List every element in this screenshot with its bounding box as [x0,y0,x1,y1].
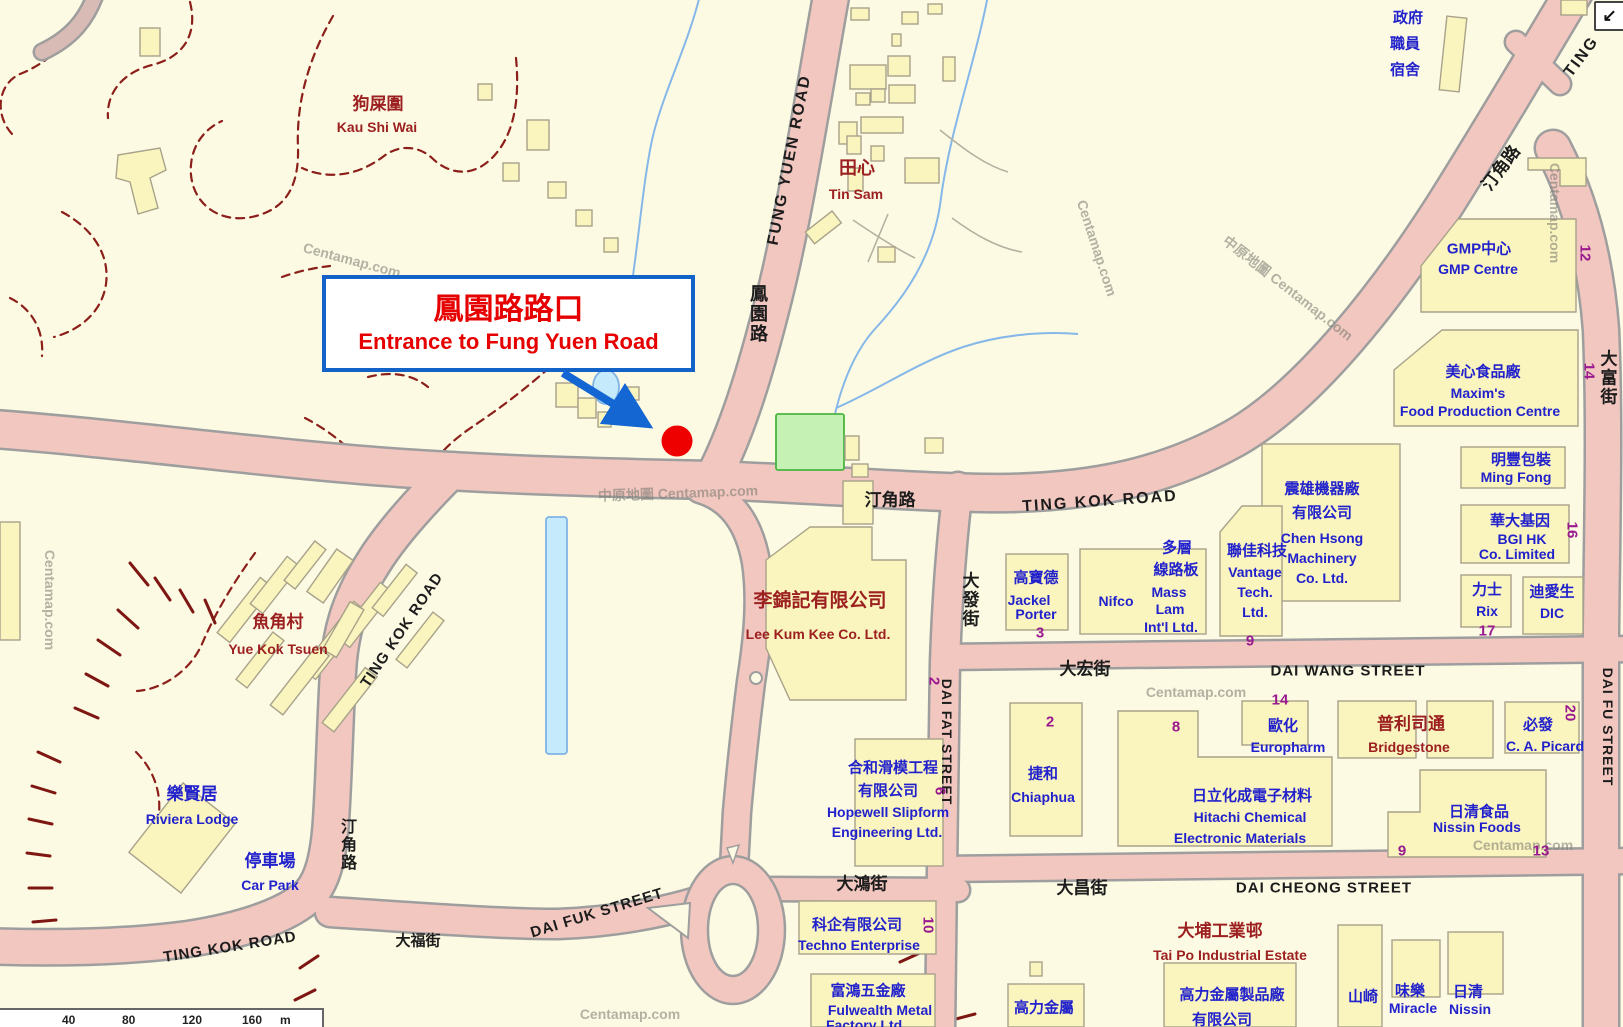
scale-tick-120: 120 [182,1013,202,1027]
road-label-dai-fu-zh: 大富街 [1599,350,1616,407]
scale-bar: 40 80 120 160 m [0,1008,324,1027]
building-label-mass-en2: Lam [1156,602,1185,616]
building-label-mass-en3: Int'l Ltd. [1144,620,1198,634]
building-label-mass-en1: Mass [1151,585,1186,599]
building-label-techno-zh: 科企有限公司 [812,918,902,933]
building-label-miracle-en: Miracle [1389,1001,1437,1015]
place-yue-kok-tsuen-en: Yue Kok Tsuen [228,642,327,656]
building-label-chen-zh1: 震雄機器廠 [1284,482,1359,497]
building-label-picard-en: C. A. Picard [1506,739,1584,753]
building-label-bgi-en1: BGI HK [1498,532,1547,546]
building-label-ming-fong-en: Ming Fong [1481,470,1552,484]
building-label-vantage-en3: Ltd. [1242,605,1268,619]
building-label-lkk-en: Lee Kum Kee Co. Ltd. [746,627,891,641]
building-label-fulwealth-zh: 富鴻五金廠 [830,984,905,999]
building-label-mass-zh2: 線路板 [1153,563,1198,578]
road-label-dai-fat-zh: 大發街 [961,572,978,629]
lot-number-3: 3 [1036,626,1044,641]
lot-number-10: 10 [921,917,936,934]
lot-number-9: 9 [1246,634,1254,649]
pan-control-button[interactable]: ↙ [1594,1,1623,31]
road-label-dai-fuk-zh: 大福街 [395,934,440,949]
road-label-ting-partial: TING [1562,34,1603,81]
place-tai-po-ie-zh: 大埔工業邨 [1178,923,1263,940]
building-label-rix-en: Rix [1476,604,1498,618]
lot-number-17: 17 [1479,624,1496,639]
building-label-chen-en1: Chen Hsong [1281,531,1363,545]
building-label-bgi-zh: 華大基因 [1490,514,1550,529]
lot-number-14: 14 [1582,363,1597,380]
place-govt-quarters-3: 宿舍 [1390,63,1420,78]
road-label-ting-kok-en-sw: TING KOK ROAD [162,929,297,965]
road-label-dai-fuk-en: DAI FUK STREET [529,886,666,941]
place-car-park-en: Car Park [241,878,299,892]
road-label-dai-cheong-zh: 大昌街 [1057,880,1108,897]
building-label-hopewell-zh2: 有限公司 [858,784,918,799]
lot-number-2-chiaphua: 2 [1046,715,1054,730]
building-label-yamazaki: 山崎 [1348,990,1378,1005]
building-label-dic-zh: 迪愛生 [1529,585,1574,600]
road-label-dai-cheong-en: DAI CHEONG STREET [1236,881,1412,896]
building-label-ko-lik-factory-2: 有限公司 [1192,1013,1252,1027]
lot-number-20: 20 [1563,705,1578,722]
building-label-vantage-en2: Tech. [1237,585,1273,599]
building-label-vantage-en1: Vantage [1228,565,1282,579]
lot-number-16: 16 [1565,522,1580,539]
place-govt-quarters-1: 政府 [1393,11,1423,26]
building-label-hitachi-en2: Electronic Materials [1174,831,1306,845]
place-riviera-zh: 樂賢居 [167,786,218,803]
road-label-ting-kok-zh-west: 汀角路 [338,818,354,872]
place-tin-sam-en: Tin Sam [829,187,883,201]
lot-number-9-nissin: 9 [1398,844,1406,859]
building-label-gmp-en: GMP Centre [1438,262,1518,276]
building-label-hitachi-en1: Hitachi Chemical [1194,810,1307,824]
road-label-ting-kok-zh-ne: 汀角路 [1479,143,1523,194]
building-label-ming-fong-zh: 明豐包裝 [1491,453,1551,468]
building-label-fulwealth-en1: Fulwealth Metal [828,1003,932,1017]
scale-tick-40: 40 [62,1013,75,1027]
building-label-chen-en3: Co. Ltd. [1296,571,1348,585]
building-label-gmp-zh: GMP中心 [1447,242,1511,257]
annotation-box: 鳳園路路口 Entrance to Fung Yuen Road [322,275,695,372]
scale-tick-80: 80 [122,1013,135,1027]
building-label-chiaphua-zh: 捷和 [1028,767,1058,782]
label-layer: FUNG YUEN ROAD 鳳園路 汀角路 TING KOK ROAD TIN… [0,0,1623,1027]
building-label-ko-lik: 高力金屬 [1014,1001,1074,1016]
pan-arrow-icon: ↙ [1602,6,1616,26]
building-label-chiaphua-en: Chiaphua [1011,790,1075,804]
place-tin-sam-zh: 田心 [839,159,875,177]
building-label-bgi-en2: Co. Limited [1479,547,1555,561]
road-label-dai-wang-zh: 大宏街 [1060,661,1111,678]
road-label-dai-fu-en: DAI FU STREET [1601,668,1615,787]
building-label-nissin2-zh: 日清 [1453,985,1483,1000]
road-label-ting-kok-en: TING KOK ROAD [1022,489,1179,516]
lot-number-14-euro: 14 [1272,693,1289,708]
building-label-jackel-en1: Jackel [1008,593,1051,607]
building-label-lkk-zh: 李錦記有限公司 [753,592,886,611]
lot-number-6: 6 [933,787,948,795]
scale-unit: m [280,1013,291,1027]
map-canvas: Centamap.com Centamap.com 中原地圖 Centamap.… [0,0,1623,1027]
road-label-dai-hung-zh: 大鴻街 [837,876,888,893]
building-label-rix-zh: 力士 [1472,583,1502,598]
building-label-jackel-zh: 高寶德 [1013,571,1058,586]
building-label-picard-zh: 必發 [1523,718,1553,733]
road-label-fung-yuen-en: FUNG YUEN ROAD [766,73,815,246]
place-govt-quarters-2: 職員 [1390,37,1420,52]
building-label-ko-lik-factory-1: 高力金屬製品廠 [1179,988,1284,1003]
building-label-vantage-zh: 聯佳科技 [1227,544,1287,559]
building-label-maxims-zh: 美心食品廠 [1445,365,1520,380]
lot-number-12: 12 [1578,245,1593,262]
building-label-maxims-en1: Maxim's [1451,386,1506,400]
road-label-fung-yuen-zh: 鳳園路 [749,284,767,344]
building-label-hopewell-zh1: 合和滑模工程 [848,761,938,776]
building-label-hopewell-en1: Hopewell Slipform [827,805,949,819]
building-label-bridgestone-en: Bridgestone [1368,740,1450,754]
lot-number-8: 8 [1172,720,1180,735]
building-label-maxims-en2: Food Production Centre [1400,404,1560,418]
building-label-jackel-en2: Porter [1015,607,1056,621]
building-label-fulwealth-en2: Factory Ltd. [826,1018,906,1027]
building-label-miracle-zh: 味樂 [1395,984,1425,999]
lot-number-13: 13 [1533,844,1550,859]
building-label-techno-en: Techno Enterprise [798,938,920,952]
place-tai-po-ie-en: Tai Po Industrial Estate [1153,948,1307,962]
place-yue-kok-tsuen-zh: 魚角村 [253,614,304,631]
road-label-ting-kok-en-west: TING KOK ROAD [358,570,446,690]
place-kau-shi-wai-zh: 狗屎圍 [353,96,404,113]
road-label-dai-wang-en: DAI WANG STREET [1270,664,1425,679]
building-label-nissin-zh: 日清食品 [1449,805,1509,820]
building-label-mass-zh1: 多層 [1162,541,1192,556]
building-label-chen-zh2: 有限公司 [1292,506,1352,521]
building-label-nissin2-en: Nissin [1449,1002,1491,1016]
annotation-subtitle: Entrance to Fung Yuen Road [358,331,658,353]
annotation-title: 鳳園路路口 [434,295,584,325]
scale-tick-160: 160 [242,1013,262,1027]
place-car-park-zh: 停車場 [245,853,296,870]
building-label-euro-zh: 歐化 [1268,719,1298,734]
building-label-dic-en: DIC [1540,606,1564,620]
road-label-dai-fat-en: DAI FAT STREET [940,679,954,806]
building-label-hitachi-zh: 日立化成電子材料 [1192,789,1312,804]
building-label-chen-en2: Machinery [1287,551,1356,565]
place-kau-shi-wai-en: Kau Shi Wai [337,120,417,134]
lot-number-2-lkk: 2 [927,677,942,685]
building-label-euro-en: Europharm [1251,740,1326,754]
place-riviera-en: Riviera Lodge [146,812,239,826]
building-label-hopewell-en2: Engineering Ltd. [832,825,942,839]
road-label-ting-kok-zh: 汀角路 [865,492,916,509]
building-label-nifco: Nifco [1099,594,1134,608]
building-label-nissin-en: Nissin Foods [1433,820,1521,834]
building-label-bridgestone-zh: 普利司通 [1377,716,1445,733]
